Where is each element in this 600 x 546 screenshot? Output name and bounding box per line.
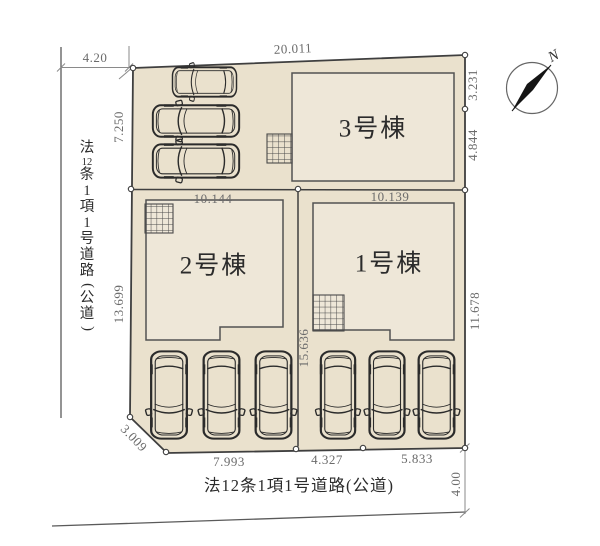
dim-left-upper: 7.250 [111,111,126,143]
dim-right-upper: 3.231 [465,69,480,101]
dim-right-lower: 11.678 [467,292,482,330]
left-road-label-char: 号 [80,232,95,248]
bottom-road-label: 法12条1項1号道路(公道) [204,476,394,495]
building-1-label: 1号棟 [355,250,424,278]
left-road-label-char: 路 [80,264,95,280]
dim-road-width: 4.00 [448,472,463,497]
building-3-label: 3号棟 [339,115,408,143]
left-road-label-char: 公 [80,291,95,307]
compass-icon: N [507,47,563,114]
dim-right-mid: 4.844 [465,129,480,161]
dim-bottom-left: 7.993 [213,454,245,469]
dim-left-lower: 13.699 [111,285,126,324]
building-2-label: 2号棟 [180,252,249,280]
compass-north-label: N [545,47,563,67]
dim-top-width: 20.011 [273,40,312,57]
dim-bottom-right: 5.833 [401,451,433,466]
left-road-label-char: ) [82,326,93,331]
dim-center-depth: 15.636 [296,329,311,368]
dim-lot1-width: 10.139 [371,189,410,204]
dim-lot2-width: 10.144 [194,191,233,206]
left-road-label-char: 道 [80,307,95,323]
left-road-label-char: 条 [80,168,95,184]
dim-top-left: 4.20 [83,50,108,65]
left-road-label-char: ( [82,283,93,288]
left-road-label-char: 法 [80,141,95,157]
grid-hatch-icon [313,295,344,331]
left-road-label-char: 1 [83,216,90,232]
dim-bottom-center: 4.327 [311,452,343,467]
left-road-label-char: 1 [83,184,90,200]
bottom-road-edge [52,512,466,526]
grid-hatch-icon [145,204,173,233]
site-plan: 20.011 4.20 7.250 13.699 3.009 10.144 10… [0,0,600,546]
left-road-label: 法 12 条 1 項 1 号 道 路 ( 公 道 ) [75,141,99,334]
left-road-label-char: 道 [80,248,95,264]
left-road-label-char: 項 [80,200,95,216]
grid-hatch-icon [267,134,292,163]
